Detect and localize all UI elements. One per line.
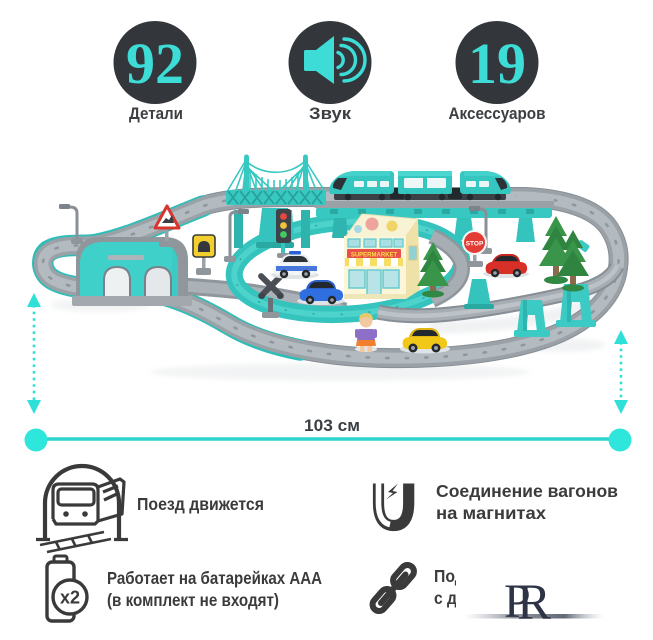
svg-text:SUPERMARKET: SUPERMARKET xyxy=(351,253,398,259)
svg-text:Звук: Звук xyxy=(309,104,352,123)
svg-text:92: 92 xyxy=(126,31,184,96)
svg-text:x2: x2 xyxy=(60,588,80,608)
svg-text:Работает на батарейках ААА: Работает на батарейках ААА xyxy=(107,568,322,588)
svg-text:STOP: STOP xyxy=(466,241,484,248)
svg-text:Соединение вагонов: Соединение вагонов xyxy=(436,481,618,501)
svg-text:на магнитах: на магнитах xyxy=(436,503,546,523)
svg-text:103 см: 103 см xyxy=(304,416,360,435)
svg-text:19: 19 xyxy=(468,31,526,96)
svg-text:R: R xyxy=(517,575,551,631)
svg-text:Поезд движется: Поезд движется xyxy=(137,494,264,514)
svg-text:(в комплект не входят): (в комплект не входят) xyxy=(107,590,279,610)
svg-text:Аксессуаров: Аксессуаров xyxy=(449,104,546,123)
svg-text:Детали: Детали xyxy=(129,104,183,123)
